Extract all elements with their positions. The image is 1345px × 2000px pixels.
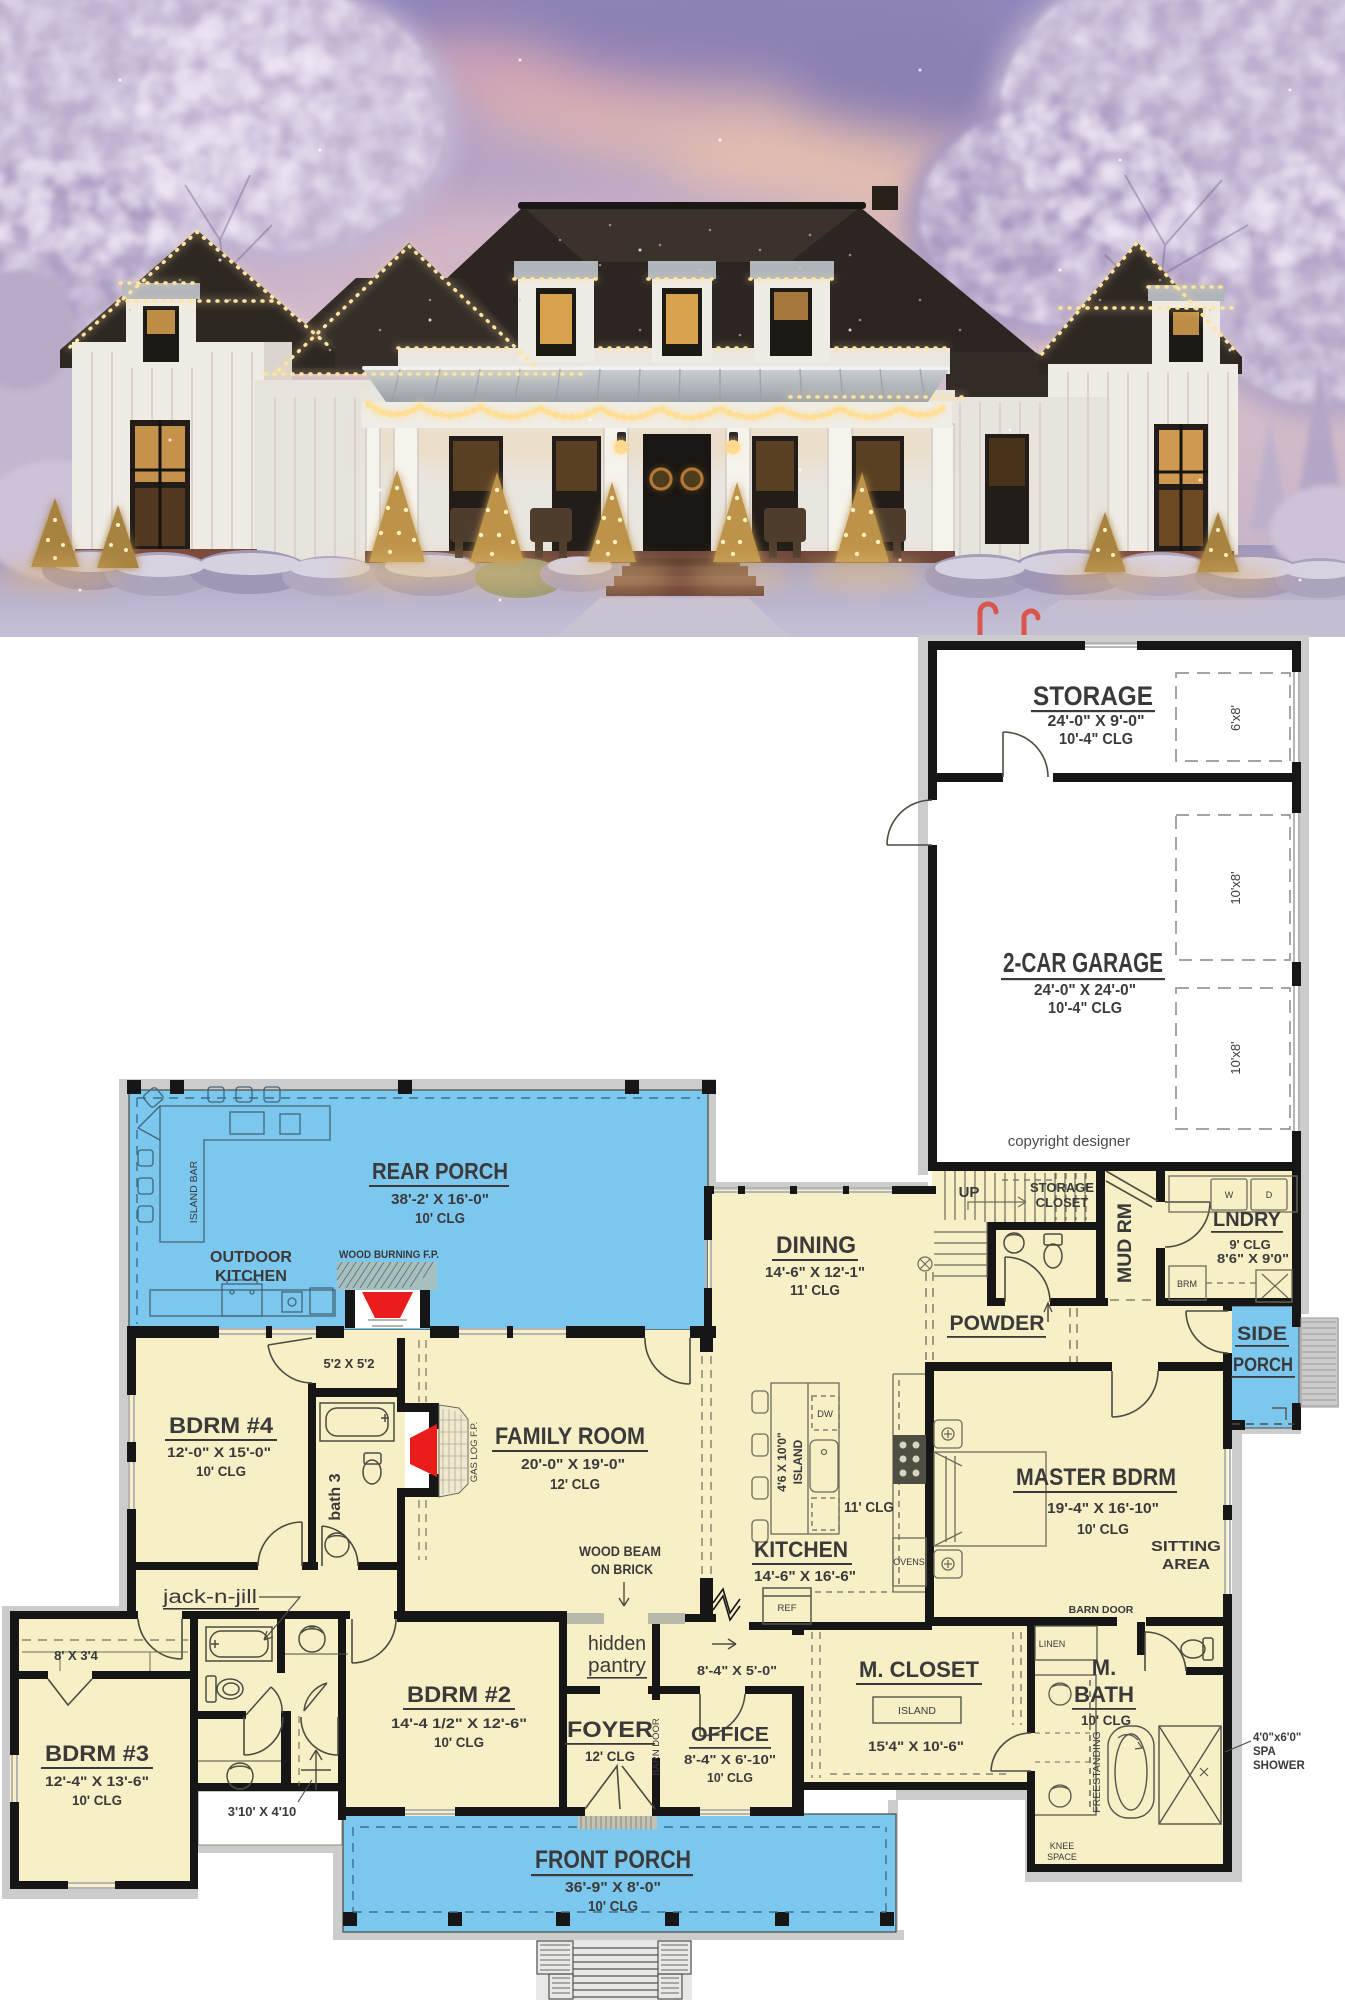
svg-text:SPACE: SPACE — [1047, 1852, 1077, 1862]
svg-text:10'-4" CLG: 10'-4" CLG — [1048, 1000, 1122, 1017]
svg-text:ISLAND BAR: ISLAND BAR — [188, 1160, 200, 1223]
svg-text:ISLAND: ISLAND — [898, 1705, 936, 1717]
svg-text:REAR PORCH: REAR PORCH — [372, 1158, 508, 1184]
svg-text:4'0"x6'0": 4'0"x6'0" — [1253, 1732, 1301, 1744]
svg-text:POWDER: POWDER — [950, 1312, 1045, 1335]
svg-text:REF: REF — [778, 1603, 797, 1614]
svg-text:10'x8': 10'x8' — [1228, 871, 1243, 904]
svg-text:12'-4" X 13'-6": 12'-4" X 13'-6" — [45, 1773, 149, 1789]
svg-text:jack-n-jill: jack-n-jill — [162, 1587, 257, 1608]
svg-text:KITCHEN: KITCHEN — [215, 1268, 287, 1285]
svg-text:10'x8': 10'x8' — [1228, 1041, 1243, 1074]
svg-text:PORCH: PORCH — [1233, 1355, 1293, 1376]
svg-text:14'-6" X 12'-1": 14'-6" X 12'-1" — [765, 1265, 865, 1281]
svg-text:5'2 X 5'2: 5'2 X 5'2 — [324, 1356, 375, 1371]
svg-text:12' CLG: 12' CLG — [550, 1477, 600, 1493]
svg-text:STORAGE: STORAGE — [1030, 1180, 1094, 1195]
svg-text:OVENS: OVENS — [893, 1557, 925, 1567]
svg-text:ISLAND: ISLAND — [791, 1439, 805, 1484]
svg-text:BATH: BATH — [1074, 1682, 1134, 1707]
svg-text:20'-0" X 19'-0": 20'-0" X 19'-0" — [521, 1457, 625, 1473]
svg-text:WOOD BURNING F.P.: WOOD BURNING F.P. — [339, 1249, 439, 1261]
svg-text:MUD RM: MUD RM — [1115, 1203, 1136, 1283]
svg-text:10' CLG: 10' CLG — [196, 1463, 246, 1479]
svg-text:LNDRY: LNDRY — [1213, 1209, 1282, 1231]
svg-text:D: D — [1266, 1190, 1273, 1200]
svg-text:10' CLG: 10' CLG — [588, 1899, 638, 1915]
svg-text:15'4" X 10'-6": 15'4" X 10'-6" — [868, 1738, 964, 1754]
svg-text:10' CLG: 10' CLG — [415, 1211, 465, 1227]
svg-text:10' CLG: 10' CLG — [72, 1792, 122, 1808]
svg-text:10'-4" CLG: 10'-4" CLG — [1059, 731, 1133, 748]
svg-text:4'6 X 10'0": 4'6 X 10'0" — [775, 1432, 789, 1491]
svg-text:38'-2' X 16'-0": 38'-2' X 16'-0" — [391, 1192, 489, 1208]
svg-text:BDRM #2: BDRM #2 — [407, 1682, 511, 1707]
svg-text:24'-0" X 24'-0": 24'-0" X 24'-0" — [1034, 982, 1136, 999]
svg-text:8'-4" X 6'-10": 8'-4" X 6'-10" — [684, 1752, 776, 1767]
svg-text:12'-0" X 15'-0": 12'-0" X 15'-0" — [167, 1444, 271, 1460]
svg-text:10' CLG: 10' CLG — [707, 1770, 753, 1785]
svg-text:SITTING: SITTING — [1151, 1539, 1221, 1555]
svg-text:12' CLG: 12' CLG — [585, 1748, 635, 1764]
svg-text:SHOWER: SHOWER — [1253, 1760, 1305, 1772]
svg-text:FOYER: FOYER — [567, 1717, 653, 1742]
svg-text:SIDE: SIDE — [1237, 1324, 1287, 1345]
svg-text:11' CLG: 11' CLG — [844, 1500, 894, 1516]
svg-text:19'-4" X 16'-10": 19'-4" X 16'-10" — [1047, 1501, 1159, 1517]
svg-text:10' CLG: 10' CLG — [434, 1734, 484, 1750]
svg-text:WOOD BEAM: WOOD BEAM — [579, 1544, 661, 1559]
svg-text:9' CLG: 9' CLG — [1229, 1237, 1270, 1252]
svg-text:M. CLOSET: M. CLOSET — [859, 1657, 980, 1682]
svg-text:copyright designer: copyright designer — [1008, 1133, 1131, 1150]
svg-text:M.: M. — [1092, 1655, 1116, 1680]
svg-text:3'10' X 4'10: 3'10' X 4'10 — [228, 1804, 297, 1819]
svg-text:OFFICE: OFFICE — [691, 1724, 769, 1746]
svg-text:BARN DOOR: BARN DOOR — [1069, 1604, 1134, 1616]
svg-text:8'-4" X 5'-0": 8'-4" X 5'-0" — [697, 1663, 777, 1678]
svg-text:BDRM #3: BDRM #3 — [45, 1741, 149, 1766]
svg-text:bath 3: bath 3 — [327, 1473, 344, 1520]
svg-text:GAS LOG F.P.: GAS LOG F.P. — [469, 1422, 480, 1483]
svg-text:BRM: BRM — [1177, 1279, 1197, 1289]
svg-text:FREESTANDING: FREESTANDING — [1091, 1731, 1103, 1812]
svg-text:14'-6" X 16'-6": 14'-6" X 16'-6" — [754, 1569, 856, 1585]
svg-text:FRONT PORCH: FRONT PORCH — [535, 1846, 691, 1874]
svg-text:BDRM #4: BDRM #4 — [169, 1413, 274, 1438]
svg-text:SPA: SPA — [1253, 1746, 1276, 1758]
svg-text:CLOSET: CLOSET — [1036, 1195, 1089, 1210]
svg-text:36'-9" X 8'-0": 36'-9" X 8'-0" — [565, 1880, 661, 1896]
svg-text:8' X 3'4: 8' X 3'4 — [54, 1648, 99, 1663]
svg-text:10' CLG: 10' CLG — [1081, 1712, 1131, 1728]
svg-text:hidden: hidden — [588, 1633, 646, 1655]
svg-text:6'x8': 6'x8' — [1228, 705, 1243, 731]
svg-text:AREA: AREA — [1162, 1557, 1211, 1573]
svg-text:ON BRICK: ON BRICK — [591, 1562, 653, 1577]
svg-text:OUTDOOR: OUTDOOR — [210, 1249, 292, 1266]
svg-text:8'6" X 9'0": 8'6" X 9'0" — [1217, 1251, 1289, 1266]
svg-text:UP: UP — [959, 1184, 980, 1201]
svg-text:DW: DW — [817, 1409, 833, 1420]
svg-text:DINING: DINING — [776, 1232, 856, 1259]
svg-text:2-CAR GARAGE: 2-CAR GARAGE — [1003, 947, 1163, 978]
svg-text:10' CLG: 10' CLG — [1077, 1522, 1129, 1538]
svg-text:LINEN: LINEN — [1039, 1639, 1066, 1649]
svg-text:FAMILY ROOM: FAMILY ROOM — [495, 1423, 645, 1450]
svg-text:W: W — [1225, 1190, 1234, 1200]
svg-text:BARN DOOR: BARN DOOR — [651, 1718, 662, 1776]
svg-text:24'-0" X 9'-0": 24'-0" X 9'-0" — [1048, 713, 1145, 730]
svg-text:14'-4 1/2" X 12'-6": 14'-4 1/2" X 12'-6" — [391, 1715, 527, 1731]
svg-text:KITCHEN: KITCHEN — [754, 1537, 848, 1562]
svg-text:KNEE: KNEE — [1050, 1841, 1075, 1851]
svg-text:pantry: pantry — [588, 1655, 646, 1677]
svg-text:STORAGE: STORAGE — [1033, 681, 1153, 711]
svg-text:11' CLG: 11' CLG — [790, 1283, 840, 1299]
svg-text:MASTER BDRM: MASTER BDRM — [1016, 1464, 1176, 1491]
